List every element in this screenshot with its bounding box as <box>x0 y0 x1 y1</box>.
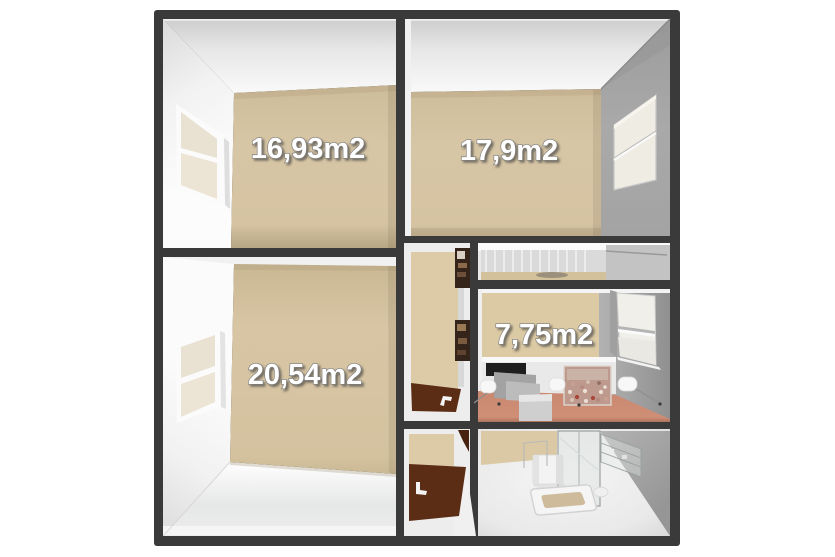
svg-text:20,54m2: 20,54m2 <box>248 359 363 391</box>
svg-text:16,93m2: 16,93m2 <box>251 133 366 165</box>
svg-text:7,75m2: 7,75m2 <box>495 319 593 351</box>
svg-text:17,9m2: 17,9m2 <box>460 135 558 167</box>
